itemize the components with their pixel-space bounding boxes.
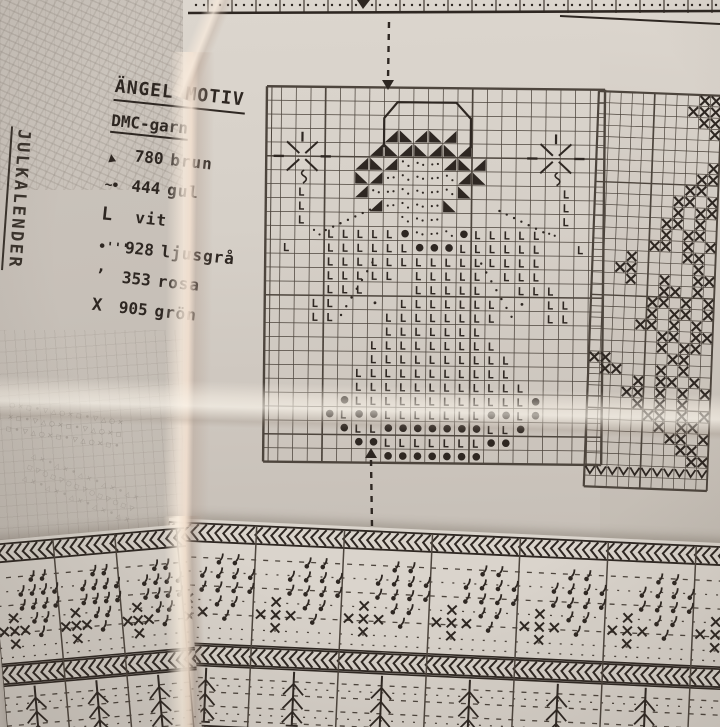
svg-text:L: L xyxy=(516,383,523,396)
svg-text:L: L xyxy=(488,299,495,312)
svg-text:L: L xyxy=(400,242,407,255)
svg-text:L: L xyxy=(503,243,510,256)
svg-text:L: L xyxy=(414,368,421,381)
svg-text:L: L xyxy=(561,300,568,313)
svg-text:L: L xyxy=(517,271,524,284)
svg-text:L: L xyxy=(472,368,479,381)
svg-text:L: L xyxy=(298,213,305,226)
svg-text:L: L xyxy=(369,367,376,380)
yarn-code: 444 xyxy=(131,176,162,198)
svg-text:L: L xyxy=(444,257,451,270)
svg-text:L: L xyxy=(458,382,465,395)
svg-text:L: L xyxy=(384,353,391,366)
svg-text:L: L xyxy=(487,354,494,367)
yarn-name: brun xyxy=(169,150,213,173)
svg-text:L: L xyxy=(413,437,420,450)
svg-text:L: L xyxy=(503,257,510,270)
tick-marks-symbol: •''' xyxy=(97,239,125,257)
comma-symbol: ’ xyxy=(94,265,123,287)
svg-text:L: L xyxy=(472,410,479,423)
svg-text:L: L xyxy=(429,270,436,283)
svg-text:L: L xyxy=(326,297,333,310)
svg-text:L: L xyxy=(342,228,349,241)
svg-text:L: L xyxy=(458,326,465,339)
svg-text:L: L xyxy=(414,298,421,311)
svg-text:L: L xyxy=(354,395,361,408)
svg-text:L: L xyxy=(458,354,465,367)
adjacent-motif-chart xyxy=(582,89,720,494)
svg-text:L: L xyxy=(474,243,481,256)
svg-text:L: L xyxy=(458,312,465,325)
svg-text:L: L xyxy=(547,286,554,299)
svg-text:L: L xyxy=(283,241,290,254)
svg-text:L: L xyxy=(532,244,539,257)
svg-text:L: L xyxy=(489,229,496,242)
svg-text:L: L xyxy=(384,381,391,394)
svg-text:L: L xyxy=(414,312,421,325)
svg-text:L: L xyxy=(386,228,393,241)
svg-text:L: L xyxy=(415,256,422,269)
angel-motif-chart: LLLLLLLLLLLLLLLLLLLLLLLLLLLLLLLLLLLLLLLL… xyxy=(259,83,609,471)
svg-text:L: L xyxy=(518,230,525,243)
svg-text:L: L xyxy=(473,313,480,326)
yarn-legend: ÄNGEL MOTIV DMC-garn ▲ 780 brun ~• 444 g… xyxy=(91,76,285,332)
legend-row: ▲ 780 brun xyxy=(107,144,278,181)
svg-text:L: L xyxy=(298,200,305,213)
svg-text:L: L xyxy=(444,285,451,298)
svg-text:L: L xyxy=(577,244,584,257)
x-symbol: X xyxy=(91,295,120,318)
yarn-code: 353 xyxy=(121,268,152,290)
svg-text:L: L xyxy=(443,368,450,381)
svg-text:L: L xyxy=(369,395,376,408)
svg-text:L: L xyxy=(501,424,508,437)
triangle-symbol: ▲ xyxy=(107,147,136,166)
yarn-code: 905 xyxy=(118,298,149,320)
svg-text:L: L xyxy=(415,270,422,283)
legend-row: L vit xyxy=(100,203,271,242)
svg-text:L: L xyxy=(384,395,391,408)
svg-text:L: L xyxy=(398,409,405,422)
yarn-code: 780 xyxy=(134,146,165,168)
svg-text:L: L xyxy=(428,368,435,381)
yarn-name: vit xyxy=(134,208,168,230)
svg-text:L: L xyxy=(444,312,451,325)
svg-text:L: L xyxy=(532,258,539,271)
svg-text:L: L xyxy=(429,340,436,353)
border-band-left-page xyxy=(0,524,203,727)
svg-text:L: L xyxy=(341,242,348,255)
svg-text:L: L xyxy=(518,244,525,257)
svg-text:L: L xyxy=(516,410,523,423)
svg-text:L: L xyxy=(384,409,391,422)
svg-text:L: L xyxy=(341,270,348,283)
svg-text:L: L xyxy=(516,396,523,409)
svg-text:L: L xyxy=(459,257,466,270)
svg-text:L: L xyxy=(546,313,553,326)
svg-text:L: L xyxy=(385,270,392,283)
svg-text:L: L xyxy=(458,368,465,381)
svg-text:L: L xyxy=(457,438,464,451)
svg-text:L: L xyxy=(400,298,407,311)
svg-text:L: L xyxy=(457,396,464,409)
svg-text:L: L xyxy=(458,340,465,353)
svg-text:L: L xyxy=(474,257,481,270)
svg-text:L: L xyxy=(472,382,479,395)
svg-text:L: L xyxy=(486,424,493,437)
svg-text:L: L xyxy=(327,255,334,268)
svg-text:L: L xyxy=(502,355,509,368)
svg-text:L: L xyxy=(414,340,421,353)
svg-text:L: L xyxy=(488,257,495,270)
svg-text:L: L xyxy=(429,257,436,270)
svg-text:L: L xyxy=(533,230,540,243)
svg-text:L: L xyxy=(311,311,318,324)
legend-row: ’ 353 rosa xyxy=(94,265,265,302)
photographed-cross-stitch-pattern-sheets: ×○△▽•◻×○△▽•◻×○ ◻×○△▽•◻×○△▽•◻× •◻×○△▽•◻×○… xyxy=(0,0,720,727)
svg-text:L: L xyxy=(488,313,495,326)
svg-text:L: L xyxy=(355,367,362,380)
yarn-name: gul xyxy=(166,180,200,202)
svg-text:L: L xyxy=(458,299,465,312)
svg-text:L: L xyxy=(413,409,420,422)
svg-text:L: L xyxy=(443,396,450,409)
L-symbol: L xyxy=(100,203,129,227)
svg-text:L: L xyxy=(327,242,334,255)
svg-text:L: L xyxy=(383,437,390,450)
svg-text:L: L xyxy=(442,437,449,450)
yarn-heading: DMC-garn xyxy=(110,111,190,141)
yarn-code: 928 xyxy=(124,238,155,260)
svg-text:L: L xyxy=(457,410,464,423)
svg-text:L: L xyxy=(399,367,406,380)
svg-text:L: L xyxy=(298,186,305,199)
border-band-right-page: c xyxy=(158,518,720,727)
svg-text:L: L xyxy=(444,298,451,311)
svg-text:L: L xyxy=(472,396,479,409)
svg-text:L: L xyxy=(399,340,406,353)
svg-text:L: L xyxy=(562,188,569,201)
svg-text:L: L xyxy=(385,256,392,269)
svg-text:L: L xyxy=(341,256,348,269)
svg-text:L: L xyxy=(429,298,436,311)
svg-text:L: L xyxy=(518,257,525,270)
svg-text:L: L xyxy=(399,312,406,325)
svg-text:L: L xyxy=(399,381,406,394)
svg-text:L: L xyxy=(501,396,508,409)
svg-text:L: L xyxy=(428,437,435,450)
svg-text:L: L xyxy=(488,243,495,256)
svg-text:L: L xyxy=(532,285,539,298)
svg-text:L: L xyxy=(413,395,420,408)
svg-text:L: L xyxy=(547,299,554,312)
svg-text:L: L xyxy=(428,382,435,395)
svg-text:L: L xyxy=(371,242,378,255)
legend-row: ~• 444 gul xyxy=(104,173,275,210)
svg-text:L: L xyxy=(459,243,466,256)
svg-text:L: L xyxy=(532,272,539,285)
svg-text:L: L xyxy=(474,229,481,242)
svg-text:L: L xyxy=(443,354,450,367)
svg-text:L: L xyxy=(503,271,510,284)
svg-text:L: L xyxy=(473,327,480,340)
svg-text:L: L xyxy=(341,283,348,296)
svg-text:L: L xyxy=(370,339,377,352)
svg-text:L: L xyxy=(385,312,392,325)
svg-text:L: L xyxy=(400,256,407,269)
yarn-name: grön xyxy=(154,301,198,324)
svg-text:L: L xyxy=(429,312,436,325)
svg-text:L: L xyxy=(459,285,466,298)
svg-text:L: L xyxy=(356,242,363,255)
svg-text:L: L xyxy=(487,396,494,409)
svg-text:L: L xyxy=(429,284,436,297)
svg-text:L: L xyxy=(428,354,435,367)
svg-text:L: L xyxy=(562,202,569,215)
svg-text:L: L xyxy=(311,297,318,310)
svg-text:L: L xyxy=(561,314,568,327)
svg-text:L: L xyxy=(327,228,334,241)
dash-dot-symbol: ~• xyxy=(104,177,132,195)
svg-text:L: L xyxy=(326,269,333,282)
svg-text:L: L xyxy=(399,354,406,367)
svg-text:L: L xyxy=(428,396,435,409)
svg-text:L: L xyxy=(443,382,450,395)
svg-text:L: L xyxy=(369,381,376,394)
svg-text:L: L xyxy=(369,423,376,436)
svg-text:L: L xyxy=(354,423,361,436)
svg-text:L: L xyxy=(487,341,494,354)
svg-text:L: L xyxy=(384,367,391,380)
svg-text:L: L xyxy=(487,368,494,381)
svg-text:L: L xyxy=(473,271,480,284)
svg-text:L: L xyxy=(356,256,363,269)
svg-text:L: L xyxy=(562,216,569,229)
svg-text:L: L xyxy=(356,228,363,241)
svg-text:L: L xyxy=(384,340,391,353)
svg-text:L: L xyxy=(399,395,406,408)
svg-text:L: L xyxy=(444,271,451,284)
svg-text:L: L xyxy=(414,284,421,297)
svg-text:L: L xyxy=(487,382,494,395)
svg-text:L: L xyxy=(326,283,333,296)
legend-row: •''' 928 ljusgrå xyxy=(97,235,268,272)
svg-text:L: L xyxy=(414,326,421,339)
svg-text:L: L xyxy=(473,354,480,367)
svg-text:L: L xyxy=(385,242,392,255)
svg-text:L: L xyxy=(473,299,480,312)
svg-text:L: L xyxy=(443,326,450,339)
svg-text:L: L xyxy=(473,285,480,298)
svg-text:L: L xyxy=(443,410,450,423)
svg-text:L: L xyxy=(443,340,450,353)
svg-text:L: L xyxy=(371,228,378,241)
svg-text:L: L xyxy=(326,311,333,324)
svg-text:L: L xyxy=(385,326,392,339)
svg-text:L: L xyxy=(502,382,509,395)
svg-text:L: L xyxy=(356,284,363,297)
svg-text:L: L xyxy=(355,381,362,394)
svg-text:L: L xyxy=(414,354,421,367)
svg-text:L: L xyxy=(459,271,466,284)
svg-text:L: L xyxy=(370,270,377,283)
svg-text:L: L xyxy=(472,438,479,451)
svg-text:L: L xyxy=(473,340,480,353)
svg-text:L: L xyxy=(429,326,436,339)
svg-text:L: L xyxy=(340,409,347,422)
svg-text:L: L xyxy=(413,382,420,395)
svg-text:L: L xyxy=(428,409,435,422)
yarn-name: rosa xyxy=(157,272,201,295)
yarn-name: ljusgrå xyxy=(160,242,236,269)
svg-text:L: L xyxy=(502,369,509,382)
svg-text:L: L xyxy=(517,285,524,298)
svg-text:L: L xyxy=(398,437,405,450)
svg-text:L: L xyxy=(399,326,406,339)
svg-text:L: L xyxy=(370,353,377,366)
svg-text:L: L xyxy=(503,230,510,243)
